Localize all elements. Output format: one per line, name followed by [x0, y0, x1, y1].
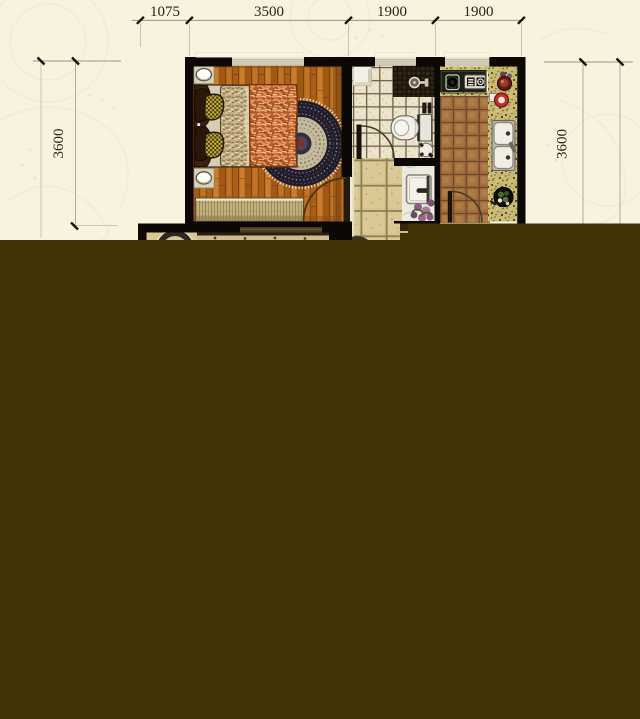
svg-text:1075: 1075: [150, 4, 180, 20]
svg-text:1900: 1900: [464, 4, 494, 20]
svg-text:3600: 3600: [51, 129, 67, 159]
svg-text:3500: 3500: [254, 4, 284, 20]
svg-text:1900: 1900: [377, 4, 407, 20]
svg-text:3600: 3600: [555, 129, 571, 159]
